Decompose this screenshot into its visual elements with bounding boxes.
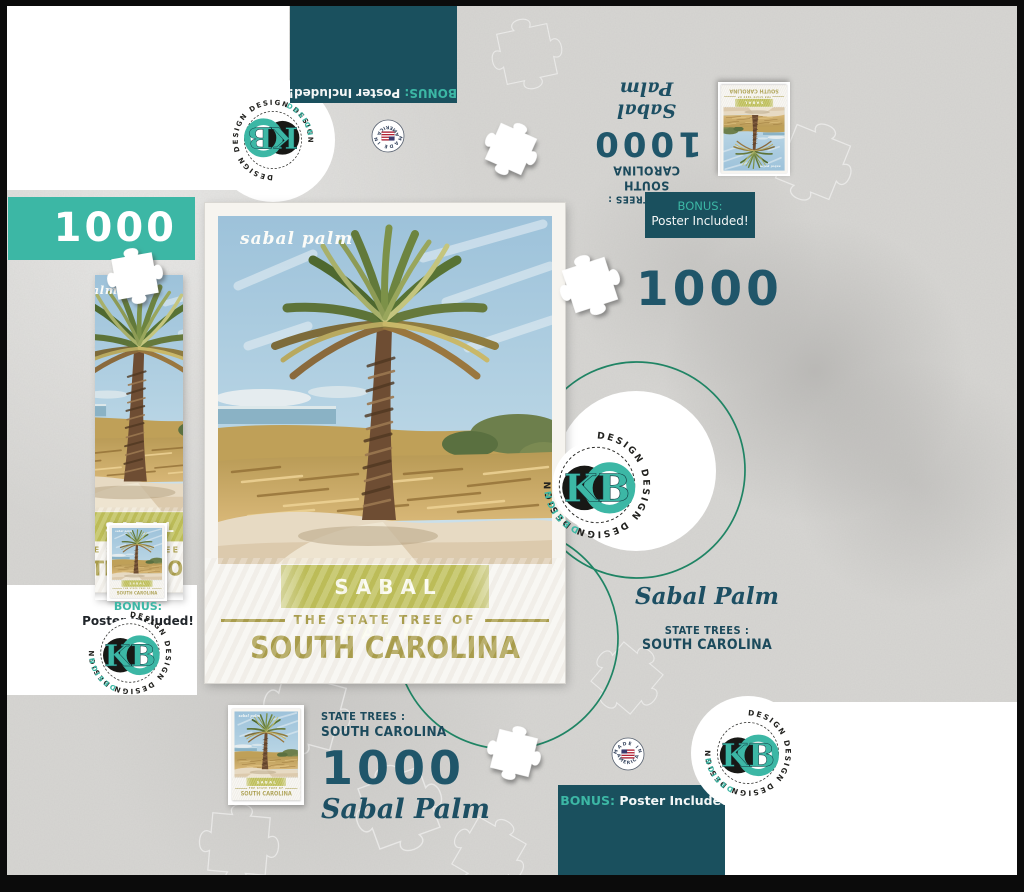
poster-script-title: sabal palm [760,165,781,169]
palm-painting: sabal palm [723,107,784,171]
us-flag-icon [382,132,395,141]
kb-logo-bottom-right: DESIGN DESIGN DESIGN DESIGN DESIGN KB [701,706,795,800]
kb-logo-bottom-left: DESIGN DESIGN DESIGN DESIGN DESIGN KB [85,608,175,698]
subtitle-rule-left [221,619,285,622]
palm-painting: sabal palm [112,528,162,580]
poster-subtitle-text: THE STATE TREE OF [737,95,770,98]
kb-initials: KB [564,466,630,511]
kb-design-logo: DESIGN DESIGN DESIGN DESIGN DESIGN KB [701,706,795,800]
series-label: STATE TREES : [617,624,797,637]
poster-thumbnail-top-upside-down: sabal palm SABAL PALM THE STATE TREE OF … [718,82,790,176]
poster-thumbnail-left: sabal palm SABAL PALM THE STATE TREE OF … [107,523,167,601]
state-name: SOUTH CAROLINA [589,164,704,194]
box-dieline-sheet: BONUS: Poster Included! MADE IN AMERICA [7,6,1017,875]
puzzle-poster: sabal palm SABAL PALM THE STATE TREE OF … [721,85,787,173]
poster-title-band: SABAL PALM [246,778,286,786]
bonus-text: Poster Included! [645,214,755,228]
palm-painting-art [723,107,784,171]
right-label-block: Sabal Palm STATE TREES : SOUTH CAROLINA [617,583,797,653]
poster-script-title: sabal palm [239,714,261,718]
kb-design-logo: DESIGN DESIGN DESIGN DESIGN DESIGN KB [229,96,317,184]
top-label-block-upside-down: STATE TREES : SOUTH CAROLINA 1000 Sabal … [589,78,704,205]
subtitle-rule-left [235,788,247,789]
palm-painting-art [218,216,552,564]
puzzle-poster: sabal palm SABAL PALM THE STATE TREE OF … [110,526,164,598]
bonus-label: BONUS: [560,793,615,808]
kb-logo-right: DESIGN DESIGN DESIGN DESIGN DESIGN KB [539,427,655,543]
subtitle-rule-right [485,619,549,622]
made-in-america-badge: MADE IN AMERICA [611,737,645,771]
subtitle-rule-right [724,96,736,97]
kb-initials: KB [721,738,775,774]
made-in-america-badge-bottom: MADE IN AMERICA [611,737,645,771]
subject-script: Sabal Palm [617,583,797,610]
us-flag-icon [622,750,635,759]
bonus-label: BONUS: [404,86,457,100]
puzzle-piece-top [470,108,552,190]
bonus-flap-top: BONUS: Poster Included! [290,6,457,103]
bottom-label-block: STATE TREES : SOUTH CAROLINA 1000 Sabal … [321,710,491,825]
poster-subtitle-text: THE STATE TREE OF [249,787,284,790]
subject-script: Sabal Palm [321,794,491,825]
piece-count: 1000 [589,126,704,161]
kb-initials: KB [104,639,155,674]
poster-state-title: SOUTH CAROLINA [721,88,787,94]
state-name: SOUTH CAROLINA [321,724,491,740]
palm-painting: sabal palm [234,711,297,777]
packaging-design-sheet: BONUS: Poster Included! MADE IN AMERICA [0,0,1024,892]
kb-logo-top-left: DESIGN DESIGN DESIGN DESIGN DESIGN KB [229,96,317,184]
poster-script-title: sabal palm [115,530,132,533]
made-in-america-badge-top: MADE IN AMERICA [371,119,405,153]
poster-state-title: SOUTH CAROLINA [110,590,164,595]
piece-count: 1000 [321,745,491,792]
poster-subtitle: THE STATE TREE OF [721,95,787,98]
poster-thumbnail-bottom: sabal palm SABAL PALM THE STATE TREE OF … [228,705,304,805]
kb-design-logo: DESIGN DESIGN DESIGN DESIGN DESIGN KB [539,427,655,543]
puzzle-piece-left [98,239,172,313]
palm-painting: sabal palm [218,216,552,564]
state-name: SOUTH CAROLINA [617,637,797,653]
main-poster: sabal palm SABAL PALM THE STATE TREE OF … [205,203,565,683]
puzzle-piece-icon [98,239,172,313]
poster-state-title: SOUTH CAROLINA [205,631,565,666]
poster-title-band: SABAL PALM [121,580,152,586]
palm-painting-art [234,711,297,777]
bonus-label: BONUS: [645,199,755,213]
subject-script: Sabal Palm [589,78,704,122]
subtitle-rule-right [285,788,297,789]
palm-painting-art [112,528,162,580]
puzzle-piece-icon [470,108,552,190]
puzzle-poster: sabal palm SABAL PALM THE STATE TREE OF … [205,203,565,683]
poster-script-title: sabal palm [240,229,353,249]
poster-state-title: SOUTH CAROLINA [232,790,300,797]
poster-subtitle: THE STATE TREE OF [232,787,300,790]
puzzle-poster: sabal palm SABAL PALM THE STATE TREE OF … [232,709,300,800]
poster-title-band: SABAL PALM [281,565,489,608]
series-label: STATE TREES : [321,710,491,723]
subtitle-rule-left [772,96,784,97]
bonus-badge-top-right: BONUS: Poster Included! [645,192,755,238]
kb-initials: KB [248,121,298,156]
poster-title-band: SABAL PALM [735,99,773,107]
kb-design-logo: DESIGN DESIGN DESIGN DESIGN DESIGN KB [85,608,175,698]
poster-subtitle: THE STATE TREE OF [205,613,565,627]
piece-count-right: 1000 [636,266,783,314]
made-in-america-badge: MADE IN AMERICA [371,119,405,153]
poster-subtitle-text: THE STATE TREE OF [294,613,477,627]
